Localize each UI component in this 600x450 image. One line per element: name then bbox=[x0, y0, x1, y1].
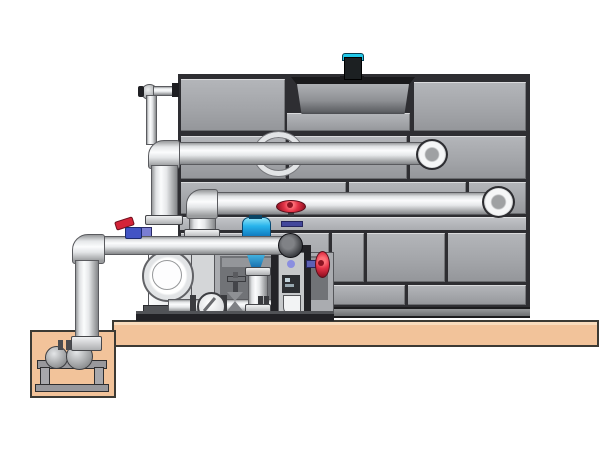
riser-pipe-left bbox=[151, 165, 178, 220]
instrument-frame-post-left bbox=[271, 245, 278, 316]
upper-return-pipe-elbow-cap bbox=[416, 139, 448, 170]
suction-manifold-end-elbow bbox=[278, 233, 303, 258]
cooling-tower-diagram bbox=[0, 0, 600, 450]
red-gate-valve-hub bbox=[287, 202, 293, 208]
fan-shroud bbox=[297, 84, 409, 114]
casing-panel bbox=[408, 285, 526, 305]
upper-return-pipe bbox=[163, 142, 425, 165]
makeup-line-cap bbox=[138, 86, 144, 97]
sump-pump-body bbox=[45, 346, 68, 369]
frame-instrument-window bbox=[285, 284, 294, 287]
casing-panel-top-left bbox=[181, 79, 285, 131]
drain-gate-valve-knob bbox=[233, 272, 238, 278]
middle-pipe-elbow bbox=[186, 189, 218, 219]
drain-gate-valve-stem bbox=[233, 281, 238, 293]
casing-panel bbox=[367, 233, 445, 282]
riser-flange bbox=[145, 215, 183, 225]
makeup-line-flange bbox=[172, 83, 179, 97]
casing-panel bbox=[332, 233, 364, 282]
suction-manifold bbox=[86, 236, 286, 255]
sump-pump-stand-base bbox=[35, 384, 109, 392]
middle-pipe-elbow-cap bbox=[482, 186, 515, 218]
casing-panel bbox=[448, 233, 526, 282]
instrument-frame-post-right bbox=[304, 245, 311, 316]
platform bbox=[112, 320, 599, 347]
frame-valve-core bbox=[287, 260, 295, 268]
casing-stringer bbox=[180, 217, 526, 230]
suction-downpipe bbox=[75, 260, 99, 342]
circulation-pump-inlet-bore bbox=[152, 260, 182, 290]
casing-panel-top-right bbox=[414, 82, 526, 131]
skid-base bbox=[136, 311, 334, 321]
makeup-line-vertical bbox=[146, 95, 157, 145]
control-valve-flange-top bbox=[245, 267, 271, 276]
casing-panel-fan-deck bbox=[287, 113, 410, 131]
suction-downpipe-coupling bbox=[71, 336, 102, 351]
middle-distribution-pipe bbox=[205, 192, 491, 215]
sump-pump-bracket bbox=[58, 340, 63, 350]
side-valve-hub bbox=[318, 260, 324, 266]
frame-instrument-window bbox=[285, 278, 290, 282]
fan-motor bbox=[344, 57, 362, 80]
lever-valve-body bbox=[125, 227, 142, 239]
red-gate-valve-bonnet bbox=[281, 221, 303, 227]
